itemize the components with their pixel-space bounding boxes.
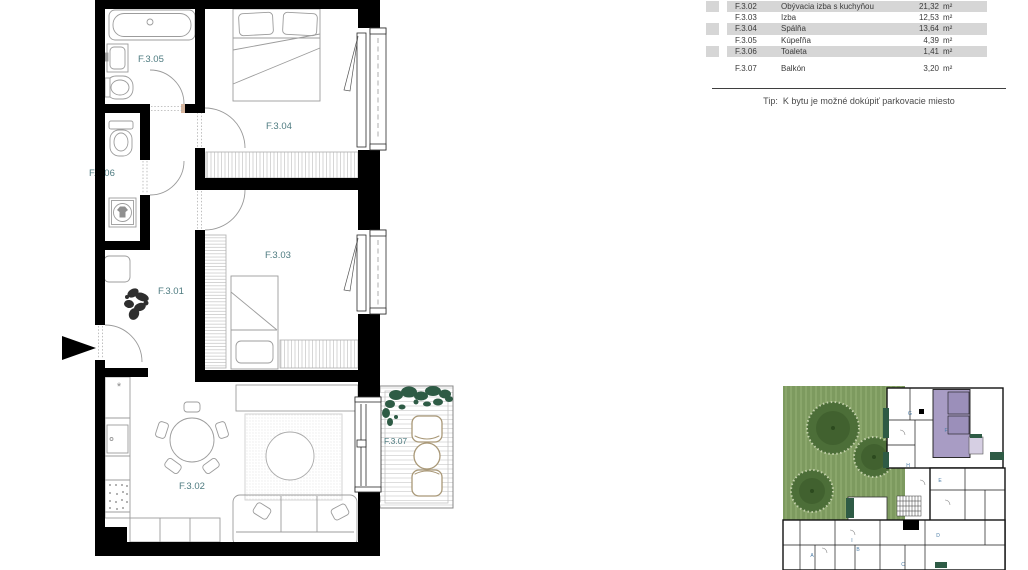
room-area-unit: m² bbox=[939, 35, 987, 46]
balcony-chairs-and-table bbox=[412, 416, 442, 496]
room-code: F.3.05 bbox=[735, 35, 781, 46]
tree-icon bbox=[807, 402, 859, 454]
balcony: F.3.07 bbox=[380, 386, 453, 508]
windows bbox=[344, 28, 386, 492]
tree-icon bbox=[791, 470, 833, 512]
room-area-unit: m² bbox=[939, 46, 987, 57]
double-bed-icon bbox=[233, 9, 320, 101]
room-area: 12,53 bbox=[893, 12, 939, 23]
unit-letter: C bbox=[901, 562, 905, 568]
wardrobe bbox=[206, 152, 358, 178]
bathroom-door-arc bbox=[150, 70, 184, 104]
bedroom-door-arc bbox=[205, 108, 245, 148]
room-area-unit: m² bbox=[939, 23, 987, 34]
wardrobe bbox=[280, 340, 358, 368]
window-izba bbox=[344, 230, 386, 314]
living-kitchen: * bbox=[105, 377, 358, 546]
room-label-f305: F.3.05 bbox=[138, 54, 164, 65]
bathtub-icon bbox=[109, 10, 195, 40]
room-label-f302: F.3.02 bbox=[179, 481, 205, 492]
wc-door-arc bbox=[150, 161, 184, 195]
room-code: F.3.07 bbox=[735, 64, 781, 73]
corridor: F.3.01 bbox=[104, 256, 184, 322]
sink-icon bbox=[104, 44, 128, 72]
table-row: F.3.03 Izba 12,53 m² bbox=[727, 12, 987, 23]
room-area: 4,39 bbox=[893, 35, 939, 46]
stove-dots bbox=[109, 484, 128, 510]
area-legend: F.3.02 Obývacia izba s kuchyňou 21,32 m²… bbox=[727, 1, 987, 57]
room-code: F.3.02 bbox=[735, 1, 781, 12]
room-code: F.3.06 bbox=[735, 46, 781, 57]
plant-icon bbox=[123, 287, 150, 322]
entrance-arrow-icon bbox=[62, 336, 96, 360]
room-code: F.3.03 bbox=[735, 12, 781, 23]
unit-letter: I bbox=[851, 538, 852, 544]
room-area: 1,41 bbox=[893, 46, 939, 57]
kitchen-cabinets-bottom bbox=[130, 518, 220, 542]
room-name: Izba bbox=[781, 12, 893, 23]
tip-text: K bytu je možné dokúpiť parkovacie miest… bbox=[783, 96, 955, 106]
room-label-f304: F.3.04 bbox=[266, 121, 292, 132]
room-area: 3,20 bbox=[893, 64, 939, 73]
room-area-unit: m² bbox=[939, 64, 987, 73]
stairs-icon bbox=[897, 496, 921, 516]
bedroom-main: F.3.04 bbox=[206, 9, 358, 178]
room-name: Balkón bbox=[781, 64, 893, 73]
coffee-table-icon bbox=[266, 432, 314, 480]
balcony-sliding-door bbox=[355, 397, 381, 492]
site-plan: G F H E D I B A C bbox=[780, 383, 1008, 570]
sofa-icon bbox=[233, 495, 357, 546]
horizontal-divider bbox=[712, 88, 1006, 89]
room-name: Kúpeľňa bbox=[781, 35, 893, 46]
table-row: F.3.04 Spálňa 13,64 m² bbox=[727, 23, 987, 34]
table-row: F.3.06 Toaleta 1,41 m² bbox=[727, 46, 987, 57]
bathroom: F.3.05 bbox=[104, 10, 195, 99]
room-name: Spálňa bbox=[781, 23, 893, 34]
tip-label: Tip: bbox=[763, 96, 778, 106]
unit-letter: G bbox=[908, 411, 912, 417]
single-bed-icon bbox=[231, 276, 278, 369]
table-row: F.3.05 Kúpeľňa 4,39 m² bbox=[727, 35, 987, 46]
room-area: 21,32 bbox=[893, 1, 939, 12]
room-label-f303: F.3.03 bbox=[265, 250, 291, 261]
room-label-f301: F.3.01 bbox=[158, 286, 184, 297]
entry-door-arc bbox=[105, 325, 142, 362]
toilet-icon bbox=[105, 76, 133, 99]
room-area-unit: m² bbox=[939, 1, 987, 12]
izba-door-arc bbox=[205, 190, 245, 230]
room-label-f307: F.3.07 bbox=[384, 436, 407, 446]
dining-table-icon bbox=[155, 402, 229, 475]
room-izba: F.3.03 bbox=[198, 235, 358, 369]
room-area: 13,64 bbox=[893, 23, 939, 34]
sink-symbol: * bbox=[117, 381, 122, 393]
unit-letter: F bbox=[944, 428, 947, 434]
room-code: F.3.04 bbox=[735, 23, 781, 34]
kitchen-counter: * bbox=[105, 377, 130, 518]
table-row: F.3.02 Obývacia izba s kuchyňou 21,32 m² bbox=[727, 1, 987, 12]
window-bedroom bbox=[344, 28, 386, 150]
room-area-unit: m² bbox=[939, 12, 987, 23]
room-name: Obývacia izba s kuchyňou bbox=[781, 1, 893, 12]
floor-plan: F.3.07 F.3.05 bbox=[0, 0, 520, 570]
room-name: Toaleta bbox=[781, 46, 893, 57]
unit-letter: H bbox=[906, 463, 910, 469]
tip-note: Tip:K bytu je možné dokúpiť parkovacie m… bbox=[712, 96, 1006, 106]
toilet-icon bbox=[109, 121, 133, 156]
unit-letter: D bbox=[936, 533, 940, 539]
washing-machine-icon bbox=[109, 198, 136, 227]
table-row-balcony: F.3.07 Balkón 3,20 m² bbox=[727, 62, 987, 74]
sideboard bbox=[236, 385, 358, 411]
